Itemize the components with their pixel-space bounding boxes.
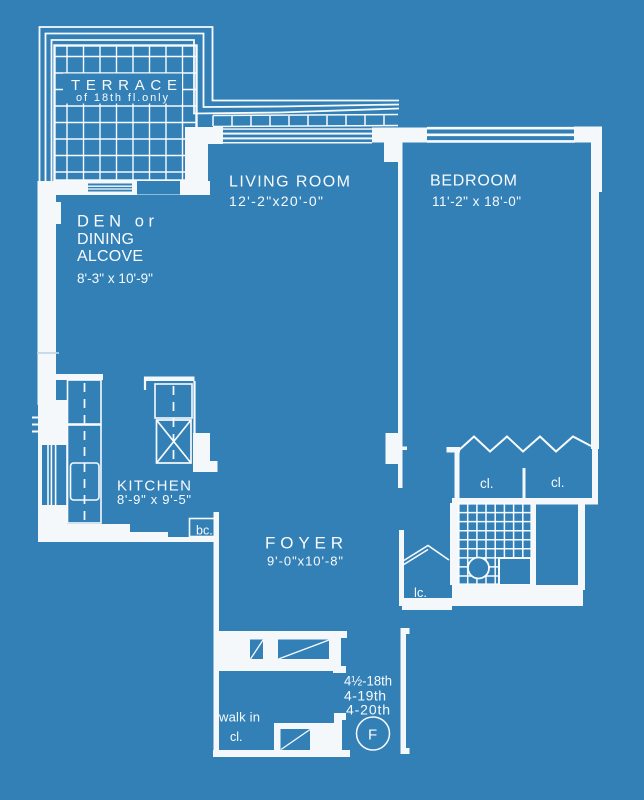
svg-text:cl.: cl. <box>230 730 243 744</box>
svg-text:bc.: bc. <box>196 524 213 538</box>
svg-text:LIVING ROOM: LIVING ROOM <box>229 174 350 191</box>
svg-text:BEDROOM: BEDROOM <box>430 173 517 190</box>
svg-text:9'-0"x10'-8": 9'-0"x10'-8" <box>267 554 343 569</box>
svg-text:4-20th: 4-20th <box>346 702 390 718</box>
svg-text:ALCOVE: ALCOVE <box>77 248 143 265</box>
svg-text:cl.: cl. <box>480 476 494 491</box>
svg-text:of 18th fl.only: of 18th fl.only <box>76 92 169 104</box>
svg-text:walk in: walk in <box>218 710 260 725</box>
svg-text:DINING: DINING <box>77 231 134 248</box>
svg-text:11'-2" x 18'-0": 11'-2" x 18'-0" <box>432 194 521 209</box>
svg-text:lc.: lc. <box>414 585 427 600</box>
svg-text:cl.: cl. <box>551 475 565 490</box>
svg-text:4½-18th: 4½-18th <box>344 673 392 689</box>
svg-text:DEN or: DEN or <box>77 213 155 231</box>
svg-text:12'-2"x20'-0": 12'-2"x20'-0" <box>229 193 323 209</box>
svg-text:8'-3" x 10'-9": 8'-3" x 10'-9" <box>77 271 153 286</box>
svg-text:F: F <box>368 727 377 744</box>
svg-text:8'-9" x 9'-5": 8'-9" x 9'-5" <box>117 492 191 507</box>
